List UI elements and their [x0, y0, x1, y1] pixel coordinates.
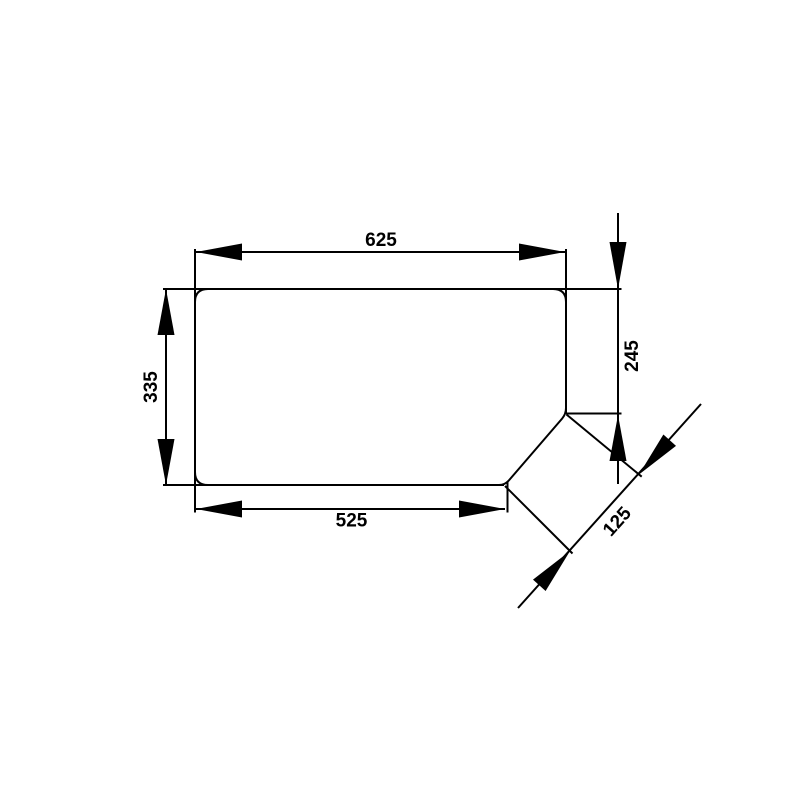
svg-text:525: 525	[336, 510, 368, 531]
svg-text:625: 625	[365, 230, 397, 251]
svg-text:245: 245	[622, 340, 643, 372]
svg-text:335: 335	[141, 371, 162, 403]
